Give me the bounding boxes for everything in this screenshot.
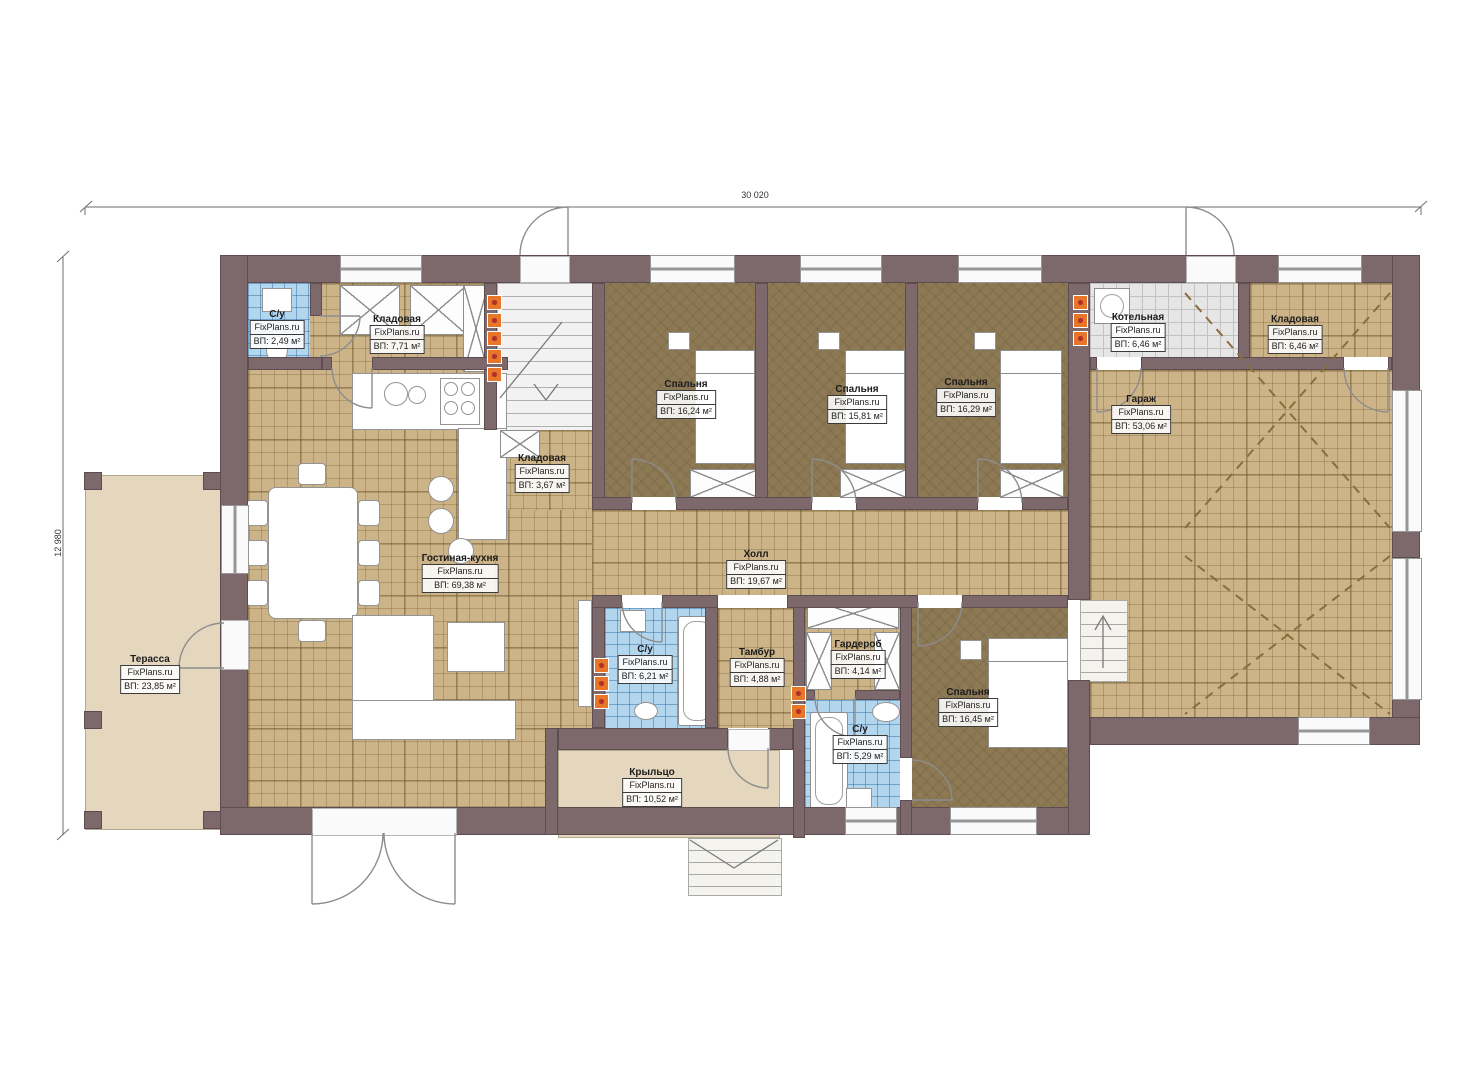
sofa [352,700,516,740]
wall-segment [900,800,912,835]
floor-hall [592,510,1068,595]
nightstand [960,640,982,660]
floor-plan: 30 020 12 980 [0,0,1474,1080]
wall-segment [905,283,918,510]
porch-steps [688,838,782,896]
vent-shaft [487,349,502,364]
dining-chair [358,500,380,526]
room-label-wc-3: С/у FixPlans.ru ВП: 5,29 м² [833,723,888,764]
bar-stool [428,508,454,534]
kitchen-sink-icon [384,382,408,406]
wall-segment [805,690,815,700]
wall-segment [856,497,978,510]
room-label-living-kitchen: Гостиная-кухня FixPlans.ru ВП: 69,38 м² [422,552,499,593]
garage-door [1392,558,1422,700]
wall-segment [900,595,912,758]
dining-chair [358,580,380,606]
window [800,255,882,283]
wall-segment [592,497,632,510]
dimension-width-label: 30 020 [710,190,800,200]
dining-chair [298,463,326,485]
dining-chair [246,540,268,566]
kitchen-sink-icon [408,386,426,404]
vent-shaft [594,658,609,673]
wall-segment [1022,497,1068,510]
dimension-height-label: 12 980 [53,513,63,573]
wall-segment [248,357,322,370]
room-label-terrace: Терасса FixPlans.ru ВП: 23,85 м² [120,653,180,694]
wall-segment [592,595,622,608]
wall-segment [1068,680,1090,835]
wall-segment [855,690,900,700]
terrace-post [204,473,220,489]
coffee-table [447,622,505,672]
room-label-bedroom-2: Спальня FixPlans.ru ВП: 15,81 м² [827,383,887,424]
front-door-opening [520,256,570,283]
sink-icon [634,702,658,720]
wardrobe-cabinet [806,632,832,690]
stove-burner-icon [444,401,458,415]
dining-chair [246,580,268,606]
window [958,255,1042,283]
room-label-garage: Гараж FixPlans.ru ВП: 53,06 м² [1111,393,1171,434]
room-label-bedroom-4: Спальня FixPlans.ru ВП: 16,45 м² [938,686,998,727]
side-door-opening [1186,256,1236,283]
wall-segment [545,728,558,835]
window [650,255,735,283]
toilet-icon [872,702,900,722]
bed [988,638,1068,748]
french-door-opening [312,808,457,836]
room-label-storage-3: Кладовая FixPlans.ru ВП: 3,67 м² [515,452,570,493]
vent-shaft [1073,295,1088,310]
terrace-door-opening [221,620,249,670]
toilet-icon [620,610,646,632]
wall-segment [310,283,322,316]
nightstand [668,332,690,350]
room-label-boiler: Котельная FixPlans.ru ВП: 6,46 м² [1111,311,1166,352]
porch-door-opening [728,729,770,751]
wall-segment [962,595,1068,608]
vent-shaft [791,704,806,719]
terrace-post [85,812,101,828]
room-label-bedroom-3: Спальня FixPlans.ru ВП: 16,29 м² [936,376,996,417]
wall-segment [705,595,718,728]
window [221,505,249,574]
bar-stool [428,476,454,502]
garage-entry-steps [1080,600,1128,682]
vent-shaft [487,331,502,346]
vent-shaft [487,295,502,310]
dining-chair [298,620,326,642]
nightstand [974,332,996,350]
stove-burner-icon [461,382,475,396]
window [1298,717,1370,745]
stove-burner-icon [461,401,475,415]
wall-segment [676,497,812,510]
vent-shaft [487,313,502,328]
room-label-vestibule: Тамбур FixPlans.ru ВП: 4,88 м² [730,646,785,687]
nightstand [818,332,840,350]
garage-door [1392,390,1422,532]
room-label-storage-1: Кладовая FixPlans.ru ВП: 7,71 м² [370,313,425,354]
wall-segment [1090,357,1097,370]
vent-shaft [791,686,806,701]
terrace-post [85,473,101,489]
window [340,255,422,283]
wardrobe-cabinet [1000,469,1064,498]
dining-chair [358,540,380,566]
dining-chair [246,500,268,526]
terrace-post [85,712,101,728]
room-label-wc-1: С/у FixPlans.ru ВП: 2,49 м² [250,308,305,349]
wall-segment [787,595,918,608]
room-label-wc-2: С/у FixPlans.ru ВП: 6,21 м² [618,643,673,684]
wall-segment [1388,357,1392,370]
room-label-porch: Крыльцо FixPlans.ru ВП: 10,52 м² [622,766,682,807]
wall-segment [1090,717,1420,745]
dining-table [268,487,358,619]
wall-segment [1392,530,1420,558]
staircase [497,283,594,432]
bed [1000,350,1062,464]
window [845,807,897,835]
wall-segment [755,283,768,510]
wall-segment [768,728,793,750]
vent-shaft [1073,313,1088,328]
vent-shaft [594,676,609,691]
stove-burner-icon [444,382,458,396]
room-label-storage-2: Кладовая FixPlans.ru ВП: 6,46 м² [1268,313,1323,354]
tv-stand [578,600,592,707]
wall-segment [558,728,728,750]
vent-shaft [594,694,609,709]
window [950,807,1037,835]
wall-segment [322,357,332,370]
terrace-post [204,812,220,828]
vent-shaft [1073,331,1088,346]
wall-segment [592,283,605,510]
room-label-wardrobe: Гардероб FixPlans.ru ВП: 4,14 м² [831,638,886,679]
window [1278,255,1362,283]
wall-segment [1141,357,1344,370]
wardrobe-cabinet [690,469,758,498]
sink-icon [846,788,872,808]
room-label-bedroom-1: Спальня FixPlans.ru ВП: 16,24 м² [656,378,716,419]
room-label-hall: Холл FixPlans.ru ВП: 19,67 м² [726,548,786,589]
wardrobe-cabinet [840,469,906,498]
wall-segment [662,595,718,608]
vent-shaft [487,367,502,382]
